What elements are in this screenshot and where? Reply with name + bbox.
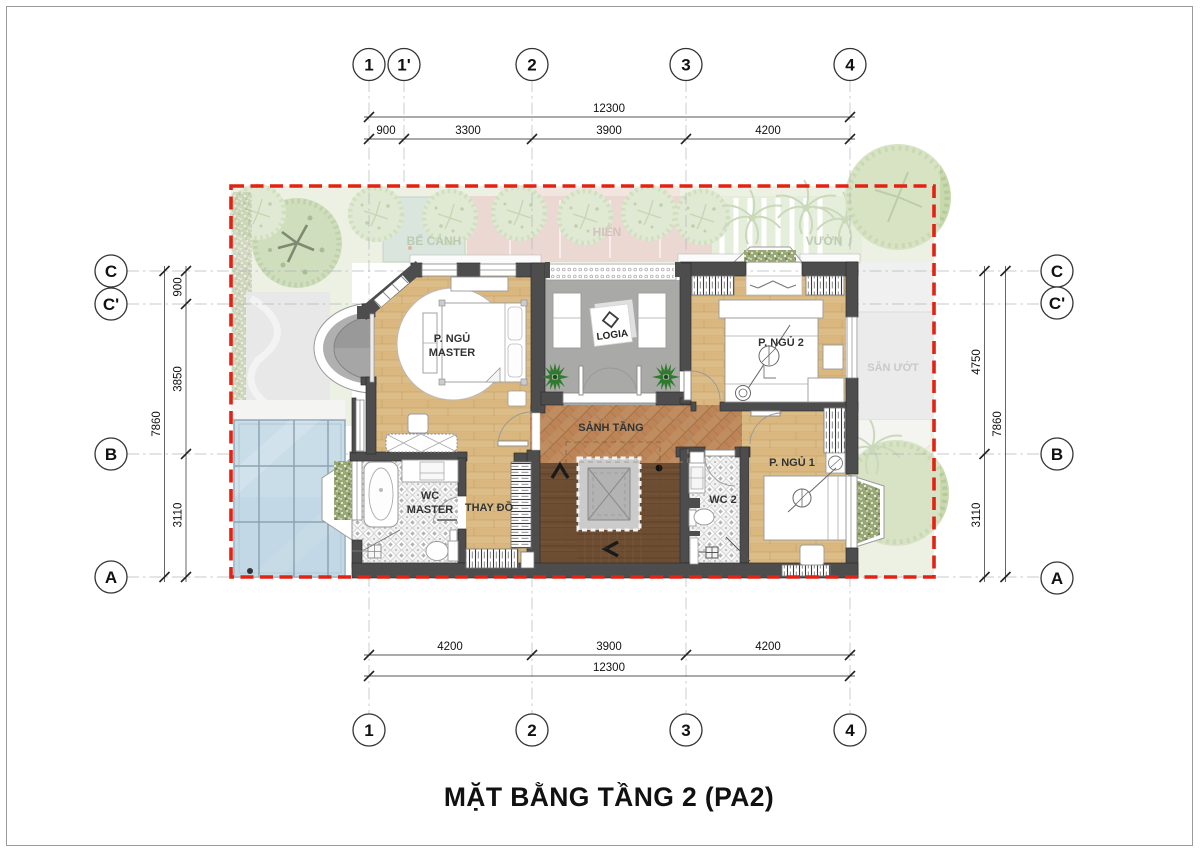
svg-text:WC 2: WC 2 [709, 494, 737, 506]
svg-text:1': 1' [397, 56, 411, 75]
svg-text:4200: 4200 [437, 641, 463, 653]
svg-text:3110: 3110 [971, 503, 983, 528]
svg-text:WC: WC [421, 490, 439, 502]
svg-text:4200: 4200 [755, 125, 781, 137]
svg-text:P. NGỦ: P. NGỦ [434, 332, 471, 345]
svg-text:2: 2 [527, 721, 536, 740]
svg-text:A: A [105, 568, 117, 587]
svg-text:MASTER: MASTER [407, 504, 454, 516]
svg-text:3900: 3900 [596, 125, 622, 137]
svg-text:7860: 7860 [151, 411, 163, 437]
svg-text:1: 1 [364, 56, 373, 75]
svg-text:SẢNH TẦNG: SẢNH TẦNG [578, 421, 643, 434]
svg-text:C: C [1051, 262, 1063, 281]
svg-text:B: B [1051, 445, 1063, 464]
svg-text:3900: 3900 [596, 641, 622, 653]
svg-text:12300: 12300 [593, 662, 625, 674]
svg-text:P. NGỦ 2: P. NGỦ 2 [758, 336, 804, 349]
svg-text:THAY ĐỒ: THAY ĐỒ [465, 501, 514, 514]
svg-text:3850: 3850 [173, 366, 185, 392]
svg-text:MASTER: MASTER [429, 347, 476, 359]
svg-text:P. NGỦ 1: P. NGỦ 1 [769, 456, 815, 469]
svg-text:C': C' [103, 295, 119, 314]
svg-text:900: 900 [376, 125, 395, 137]
svg-text:12300: 12300 [593, 103, 625, 115]
svg-text:4200: 4200 [755, 641, 781, 653]
svg-text:C: C [105, 262, 117, 281]
svg-text:4: 4 [845, 56, 855, 75]
svg-text:3300: 3300 [455, 125, 481, 137]
svg-text:MẶT BẰNG TẦNG 2 (PA2): MẶT BẰNG TẦNG 2 (PA2) [444, 782, 774, 812]
svg-text:2: 2 [527, 56, 536, 75]
svg-text:900: 900 [173, 277, 185, 296]
svg-text:4750: 4750 [971, 349, 983, 375]
svg-text:1: 1 [364, 721, 373, 740]
svg-text:A: A [1051, 569, 1063, 588]
svg-text:B: B [105, 445, 117, 464]
svg-text:3: 3 [681, 721, 690, 740]
svg-text:3110: 3110 [173, 503, 185, 528]
svg-text:4: 4 [845, 721, 855, 740]
svg-text:C': C' [1049, 294, 1065, 313]
svg-text:7860: 7860 [992, 411, 1004, 437]
svg-text:3: 3 [681, 56, 690, 75]
